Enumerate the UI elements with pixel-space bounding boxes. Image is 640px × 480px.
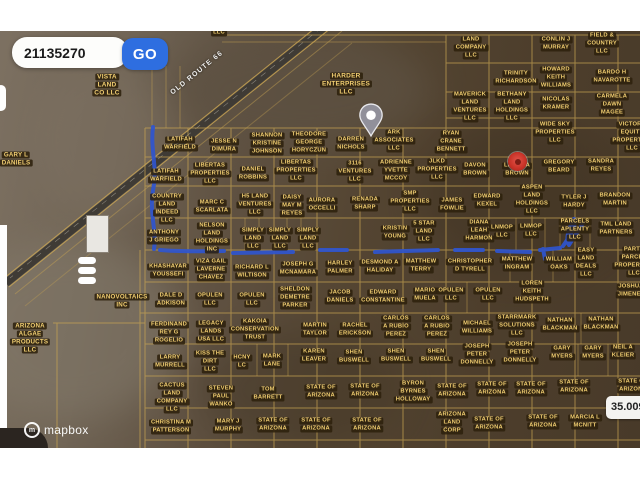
parcel-label: FIELD &COUNTRYLLC	[585, 33, 619, 56]
parcel-label: DARRENNICHOLS	[335, 137, 367, 152]
parcel-label: STATE OFARIZONA	[299, 418, 332, 433]
parcel-label: JAMESFOWLIE	[438, 198, 466, 213]
parcel-label: MARCIA LMCNITT	[568, 415, 602, 430]
parcel-label: AURORAOCCELLI	[307, 198, 338, 213]
parcel-label: LARRYMURRELL	[153, 355, 187, 370]
parcel-label: STATE OFARIZONA	[348, 384, 381, 399]
parcel-label: HARLEYPALMER	[325, 261, 354, 276]
map-canvas[interactable]: VISTALANDCO LLCLLCHARDERENTERPRISESLLCGA…	[0, 0, 640, 480]
parcel-label: DALE DADKISON	[155, 293, 187, 308]
parcel-label: EDWARDCONSTANTINE	[359, 290, 407, 305]
parcel-label: BETHANYLANDHOLDINGSLLC	[494, 92, 530, 123]
parcel-label: CARMELADAWNMAGEE	[595, 94, 629, 117]
parcel-label: JESSE NDIMURA	[209, 139, 239, 154]
parcel-label: 3116VENTURESLLC	[336, 161, 373, 184]
trailer	[78, 267, 96, 274]
parcel-label: CARLOSA RUBIOPEREZ	[381, 316, 411, 339]
parcel-label: LNMOPLLC	[489, 225, 515, 240]
parcel-label: H5 LANDVENTURESLLC	[236, 194, 273, 217]
parcel-label: PARCELSAPLENTYLLC	[559, 219, 592, 242]
parcel-label: GARY LDANIELS	[0, 152, 32, 167]
parcel-label: KHASHAYARYOUSSEFI	[147, 264, 189, 279]
parcel-label: HCNYLC	[231, 355, 252, 370]
parcel-label: MICHAELWILLIAMS	[460, 321, 494, 336]
parcel-label: STATE OFARIZONA	[616, 379, 640, 394]
parcel-label: CHRISTOPHERD TYRELL	[446, 259, 494, 274]
parcel-label: KARENLEAVER	[300, 349, 328, 364]
parcel-label: TML LANDPARTNERS	[597, 222, 634, 237]
parcel-label: NELSONLANDHOLDINGSINC	[194, 223, 230, 254]
parcel-label: MARTINTAYLOR	[301, 323, 329, 338]
parcel-label: MARY JMURPHY	[213, 419, 243, 434]
parcel-label: LIBERTASPROPERTIESLLC	[188, 163, 231, 186]
parcel-label: SHENBUSWELL	[337, 350, 371, 365]
parcel-label: ARIZONAALGAEPRODUCTSLLC	[10, 323, 50, 354]
parcel-label: LATIFAHWARFIELD	[162, 137, 198, 152]
parcel-label: WIDE SKYPROPERTIESLLC	[533, 122, 576, 145]
parcel-label: JOSEPHPETERDONNELLY	[459, 344, 496, 367]
parcel-label: JLKDPROPERTIESLLC	[415, 159, 458, 182]
parcel-label: WILLIAMOAKS	[544, 257, 574, 272]
location-marker-red[interactable]	[508, 152, 527, 171]
parcel-label: LIBERTASPROPERTIESLLC	[274, 160, 317, 183]
parcel-label: NATHANBLACKMAN	[581, 317, 620, 332]
parcel-label: STATE OFARIZONA	[304, 385, 337, 400]
bottom-margin	[0, 448, 640, 480]
parcel-label: RYANCRANEBENNETT	[435, 131, 468, 154]
parcel-label: KRISTINYOUNG	[381, 226, 410, 241]
parcel-label: OPULENLLC	[195, 293, 224, 308]
parcel-label: SIMPLYLANDLLC	[295, 228, 321, 251]
parcel-label: ANTHONYJ GRIEGO	[147, 230, 181, 245]
parcel-label: DAISYMAY MREYES	[280, 195, 305, 218]
parcel-label: DANIELROBBINS	[237, 167, 269, 182]
parcel-label: SHELDONDEMETREPARKER	[278, 287, 312, 310]
parcel-label: GARYMYERS	[580, 346, 606, 361]
mapbox-icon: m	[24, 422, 40, 438]
search-input[interactable]	[12, 37, 128, 68]
parcel-label: SMPPROPERTIESLLC	[388, 191, 431, 214]
parcel-label: DAVONBROWN	[461, 163, 489, 178]
parcel-label: CHRISTINA MPATTERSON	[149, 420, 193, 435]
photo-edge	[0, 85, 6, 111]
parcel-label: JACOBDANIELS	[325, 290, 356, 305]
parcel-label: STATE OFARIZONA	[526, 415, 559, 430]
trailer	[78, 277, 96, 284]
parcel-label: STATE OFARIZONA	[350, 418, 383, 433]
parcel-label: NATHANBLACKMAN	[540, 318, 579, 333]
go-button[interactable]: GO	[122, 38, 168, 70]
parcel-label: FERDINANDREY GROGELIO	[149, 322, 189, 345]
parcel-label: PARTYPARCELPROPERTIESLLC	[612, 247, 640, 278]
parcel-label: SIMPLYLANDLLC	[267, 228, 293, 251]
parcel-label: MARIOMUELA	[412, 288, 438, 303]
parcel-label: DESMOND AHALIDAY	[359, 260, 400, 275]
location-pin-gray[interactable]	[358, 103, 384, 137]
parcel-label: KAKOIACONSERVATIONTRUST	[229, 319, 281, 342]
parcel-label: LANDCOMPANYLLC	[454, 37, 489, 60]
parcel-label: NEIL AKLEIER	[610, 345, 636, 360]
parcel-label: COUNTRYLANDINDEEDLLC	[150, 194, 184, 225]
parcel-label: TRINITYRICHARDSON	[493, 71, 538, 86]
parcel-label: STEVENPAULWANKO	[207, 386, 235, 409]
parcel-label: MARC CSCARLATA	[194, 200, 231, 215]
parcel-label: OPULENLLC	[473, 288, 502, 303]
parcel-label: SHENBUSWELL	[419, 349, 453, 364]
parcel-label: LORENKEITHHUDSPETH	[513, 281, 551, 304]
parcel-label: STATE OFARIZONA	[435, 384, 468, 399]
parcel-label: EDWARDKEXEL	[472, 194, 503, 209]
parcel-label: EASYLANDDEALSLLC	[574, 248, 599, 279]
parcel-label: SHANNONKRISTINEJOHNSON	[250, 133, 285, 156]
parcel-label: ARIZONALANDCORP	[436, 412, 468, 435]
parcel-label: TOMBARRETT	[251, 387, 284, 402]
parcel-label: 5 STARLANDLLC	[411, 221, 436, 244]
parcel-label: CONLIN JMURRAY	[540, 37, 573, 52]
parcel-label: SANDRAREYES	[586, 159, 616, 174]
coordinate-badge: 35.0096	[606, 396, 640, 419]
parcel-label: STATE OFARIZONA	[514, 382, 547, 397]
parcel-label: TYLER JHARDY	[559, 195, 588, 210]
parcel-label: JOSHUAJIMENEZ	[616, 284, 640, 299]
trailer	[78, 257, 96, 264]
parcel-label: CARLOSA RUBIOPEREZ	[422, 316, 452, 339]
parcel-label: KISS THEDIRTLLC	[194, 351, 226, 374]
parcel-label: STATE OFARIZONA	[557, 380, 590, 395]
parcel-label: ADRIENNEYVETTEMCCOY	[378, 160, 414, 183]
parcel-label: STATE OFARIZONA	[256, 418, 289, 433]
parcel-label: MATTHEWTERRY	[404, 259, 439, 274]
parcel-label: BARDO HNAVAROTTE	[591, 70, 632, 85]
parcel-label: MATTHEWINGRAM	[500, 257, 535, 272]
parcel-label: SIMPLYLANDLLC	[240, 228, 266, 251]
parcel-label: RENADASHARP	[350, 197, 380, 212]
parcel-label: STATE OFARIZONA	[475, 382, 508, 397]
parcel-label: BRANDONMARTIN	[597, 193, 632, 208]
parcel-label: STATE OFARIZONA	[472, 417, 505, 432]
parcel-label: CACTUSLANDCOMPANYLLC	[155, 383, 190, 414]
parcel-label: RICHARD LWILTISON	[233, 265, 271, 280]
parcel-label: MARKLANE	[261, 354, 283, 369]
parcel-label: JOSEPH GMCNAMARA	[278, 262, 318, 277]
mapbox-wordmark: mapbox	[44, 423, 89, 437]
parcel-label: LNMOPLLC	[518, 224, 544, 239]
parcel-label: JOSEPHPETERDONNELLY	[502, 342, 539, 365]
parcel-label: VISTALANDCO LLC	[92, 74, 121, 97]
photo-edge	[0, 225, 7, 445]
parcel-label: GARYMYERS	[549, 346, 575, 361]
building	[86, 215, 109, 253]
parcel-label: OPULENLLC	[436, 288, 465, 303]
parcel-label: LATIFAHWARFIELD	[148, 169, 184, 184]
parcel-label: STARRMARKSOLUTIONSLLC	[496, 315, 539, 338]
parcel-label: MAVERICKLANDVENTURESLLC	[451, 92, 488, 123]
parcel-label: HOWARDKEITHWILLIAMS	[539, 67, 573, 90]
parcel-label: ASPENLANDHOLDINGSLLC	[514, 185, 550, 216]
parcel-label: OPULENLLC	[237, 293, 266, 308]
parcel-label: HARDERENTERPRISESLLC	[320, 73, 372, 96]
parcel-label: GREGORYBEARD	[542, 160, 577, 175]
parcel-label: THEODOREGEORGEHORYCZUN	[290, 132, 328, 155]
parcel-label: VIZA GAILLAVERNECHAVEZ	[194, 259, 228, 282]
parcel-label: VICTORYEQUITYPROPERTIESLLC	[610, 122, 640, 153]
parcel-label: LEGACYLANDSUSA LLC	[196, 321, 226, 344]
mapbox-logo[interactable]: m mapbox	[24, 422, 89, 438]
parcel-label: NICOLASKRAMER	[540, 97, 572, 112]
parcel-label: NANOVOLTAICSINC	[95, 294, 150, 309]
top-margin	[0, 0, 640, 31]
parcel-label: RACHELERICKSON	[337, 323, 373, 338]
parcel-label: BYRONBYRNESHOLLOWAY	[394, 381, 433, 404]
parcel-label: SHENBUSWELL	[379, 349, 413, 364]
